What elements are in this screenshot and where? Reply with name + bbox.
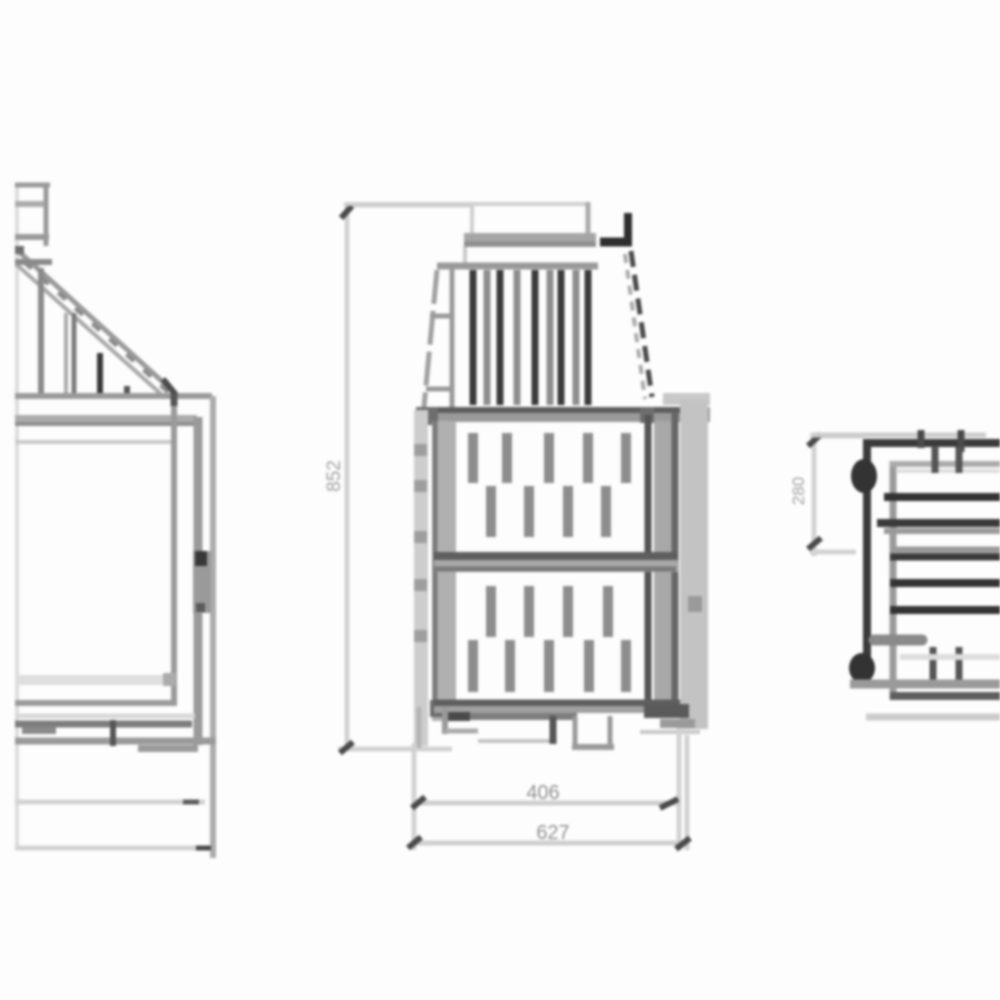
svg-text:852: 852: [324, 460, 345, 492]
svg-text:406: 406: [526, 782, 559, 804]
svg-text:280: 280: [789, 477, 808, 505]
svg-text:627: 627: [536, 822, 569, 844]
